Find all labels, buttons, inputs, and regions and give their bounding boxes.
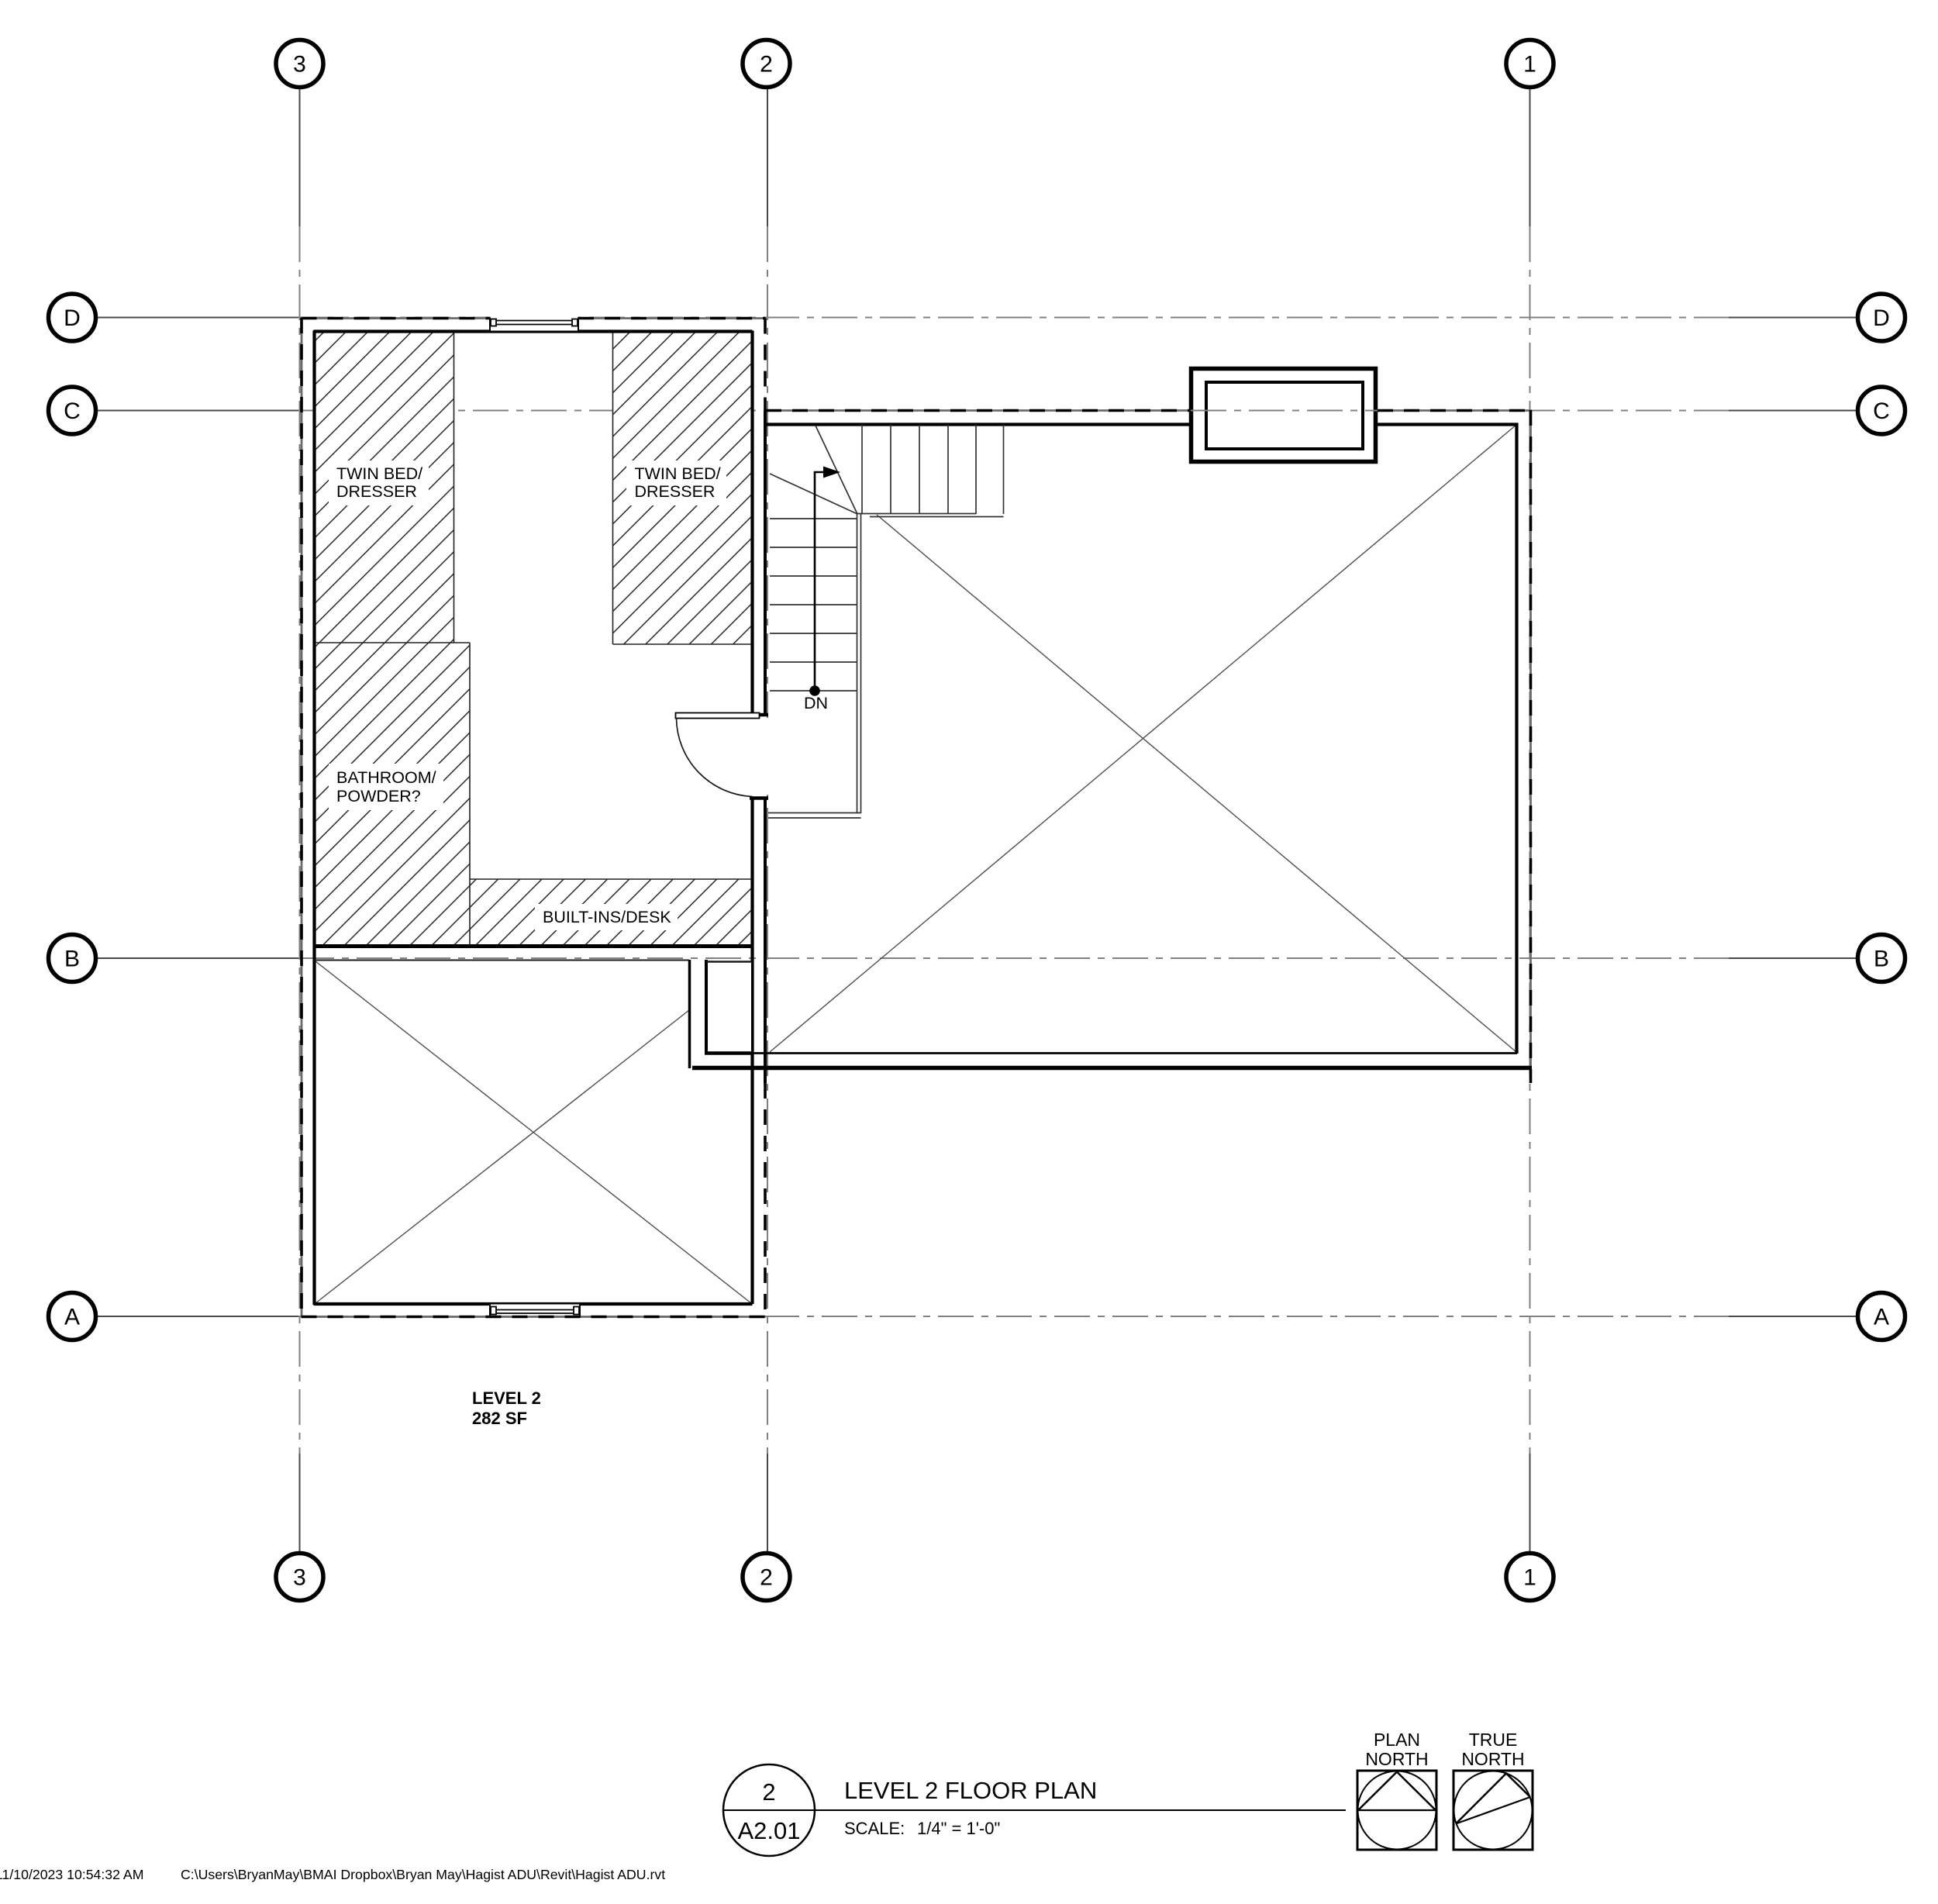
svg-text:3: 3 xyxy=(293,1565,306,1591)
svg-text:282 SF: 282 SF xyxy=(472,1409,527,1428)
svg-text:NORTH: NORTH xyxy=(1365,1749,1428,1769)
svg-text:PLAN: PLAN xyxy=(1374,1730,1420,1750)
svg-text:DRESSER: DRESSER xyxy=(336,482,417,501)
svg-text:C: C xyxy=(1873,398,1890,424)
svg-text:DRESSER: DRESSER xyxy=(635,482,716,501)
svg-text:1: 1 xyxy=(1523,1565,1536,1591)
svg-text:LEVEL 2 FLOOR PLAN: LEVEL 2 FLOOR PLAN xyxy=(844,1777,1097,1804)
svg-text:C: C xyxy=(64,398,81,424)
svg-text:TWIN BED/: TWIN BED/ xyxy=(635,464,721,483)
svg-text:B: B xyxy=(1874,947,1889,972)
svg-text:1: 1 xyxy=(1523,52,1536,78)
svg-text:2: 2 xyxy=(762,1778,775,1806)
svg-text:A: A xyxy=(64,1305,80,1330)
svg-text:BATHROOM/: BATHROOM/ xyxy=(336,768,436,787)
svg-text:BUILT-INS/DESK: BUILT-INS/DESK xyxy=(543,908,671,926)
svg-text:POWDER?: POWDER? xyxy=(336,787,421,805)
svg-text:D: D xyxy=(64,305,81,331)
svg-text:D: D xyxy=(1873,305,1890,331)
svg-text:A: A xyxy=(1874,1305,1889,1330)
svg-text:3: 3 xyxy=(293,52,306,78)
svg-text:TWIN BED/: TWIN BED/ xyxy=(336,464,422,483)
svg-text:1/4" = 1'-0": 1/4" = 1'-0" xyxy=(917,1819,1000,1838)
svg-text:DN: DN xyxy=(804,694,828,712)
svg-text:SCALE:: SCALE: xyxy=(844,1819,905,1838)
svg-text:2: 2 xyxy=(760,52,773,78)
svg-text:NORTH: NORTH xyxy=(1461,1749,1524,1769)
svg-text:2: 2 xyxy=(760,1565,773,1591)
svg-text:11/10/2023 10:54:32 AM: 11/10/2023 10:54:32 AM xyxy=(0,1867,143,1882)
svg-text:A2.01: A2.01 xyxy=(737,1817,800,1844)
svg-text:B: B xyxy=(64,947,80,972)
svg-text:TRUE: TRUE xyxy=(1469,1730,1518,1750)
svg-text:C:\Users\BryanMay\BMAI Dropbox: C:\Users\BryanMay\BMAI Dropbox\Bryan May… xyxy=(181,1867,665,1882)
svg-text:LEVEL 2: LEVEL 2 xyxy=(472,1388,541,1408)
